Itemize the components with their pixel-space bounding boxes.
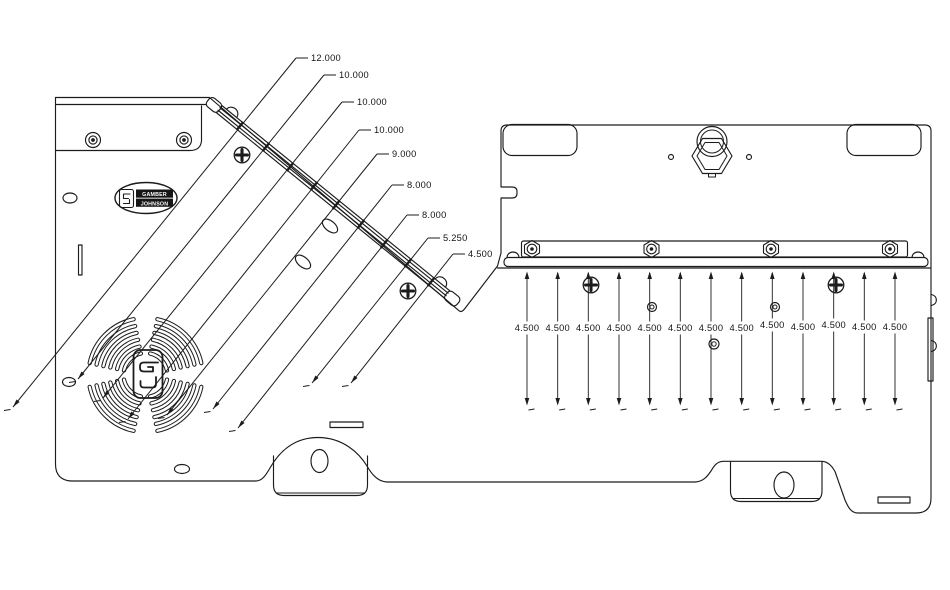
dim-label: 4.500: [668, 323, 693, 333]
end-tick: [713, 409, 719, 410]
right-view: [498, 125, 937, 504]
hex-bolt-icon: [764, 241, 779, 258]
ring-hole: [648, 303, 657, 312]
end-tick: [590, 409, 596, 410]
screw-icon: [86, 133, 101, 148]
dim-label: 4.500: [515, 323, 540, 333]
mounting-strip: [504, 252, 928, 266]
arrowhead-icon: [801, 398, 806, 406]
dim-label: 4.500: [852, 322, 877, 332]
arrowhead-icon: [831, 272, 836, 280]
callout-dimensions: 12.00010.00010.00010.0009.0008.0008.0005…: [4, 53, 493, 432]
callout-leader: [103, 102, 342, 398]
hex-bolt-icon: [644, 241, 659, 258]
foot-tab-right: [731, 462, 823, 502]
callout-label: 10.000: [374, 125, 404, 135]
callout-leader: [213, 185, 392, 409]
callout-leader: [167, 154, 377, 415]
callout-label: 10.000: [339, 70, 369, 80]
arrowhead-icon: [739, 272, 744, 280]
callout-label: 5.250: [443, 233, 468, 243]
edge-bump: [932, 295, 937, 306]
dim-label: 4.500: [699, 323, 724, 333]
dim-label: 4.500: [729, 323, 754, 333]
hex-bolt-icon: [883, 241, 898, 258]
slot: [878, 497, 910, 503]
arrowhead-icon: [709, 272, 714, 280]
engineering-drawing: 12.00010.00010.00010.0009.0008.0008.0005…: [0, 0, 950, 590]
arrowhead-icon: [862, 398, 867, 406]
arrowhead-icon: [678, 398, 683, 406]
slot: [320, 216, 340, 235]
arrowhead-icon: [678, 272, 683, 280]
arrowhead-icon: [831, 398, 836, 406]
arrowhead-icon: [647, 272, 652, 280]
hex-bolts: [525, 241, 898, 258]
arrowhead-icon: [617, 272, 622, 280]
top-cutout: [503, 125, 577, 156]
pilot-hole: [747, 155, 752, 160]
arrowhead-icon: [893, 272, 898, 280]
ring-hole: [709, 339, 719, 349]
dim-label: 4.500: [607, 323, 632, 333]
end-tick: [897, 409, 903, 410]
top-cutout: [847, 125, 921, 156]
end-tick: [651, 409, 657, 410]
callout-label: 9.000: [392, 149, 417, 159]
foot-tab-left: [274, 450, 368, 496]
arrowhead-icon: [525, 398, 530, 406]
arrowhead-icon: [647, 398, 652, 406]
knob: [692, 127, 732, 178]
callout-label: 8.000: [407, 180, 432, 190]
mount-rail: [205, 92, 465, 307]
hex-bolt-icon: [525, 241, 540, 258]
end-tick: [774, 409, 780, 410]
arrowhead-icon: [801, 272, 806, 280]
dim-label: 4.500: [576, 323, 601, 333]
arrowhead-icon: [739, 398, 744, 406]
logo-brand-line1: GAMBER: [142, 192, 167, 198]
dim-label: 4.500: [760, 320, 785, 330]
arrowhead-icon: [586, 398, 591, 406]
slot: [330, 422, 363, 428]
edge-bump: [932, 341, 937, 352]
pilot-hole: [669, 155, 674, 160]
crosshead-screw-icon: [583, 277, 599, 293]
end-tick: [229, 431, 236, 432]
arrowhead-icon: [617, 398, 622, 406]
slot: [63, 193, 77, 203]
end-tick: [303, 386, 310, 387]
arrowhead-icon: [555, 398, 560, 406]
speaker-grille: [90, 319, 202, 431]
end-tick: [682, 409, 688, 410]
vertical-dimensions: 4.5004.5004.5004.5004.5004.5004.5004.500…: [514, 272, 908, 411]
arrowhead-icon: [525, 272, 530, 280]
logo-brand-line2: JOHNSON: [141, 201, 169, 207]
arrowhead-icon: [862, 272, 867, 280]
hinge-bar: [522, 241, 908, 258]
dim-label: 4.500: [791, 322, 816, 332]
dim-label: 4.500: [883, 322, 908, 332]
end-tick: [559, 409, 565, 410]
end-tick: [4, 410, 11, 411]
dim-label: 4.500: [545, 323, 570, 333]
callout-label: 12.000: [311, 53, 341, 63]
end-tick: [69, 382, 76, 383]
crosshead-screw-icon: [234, 147, 250, 163]
end-tick: [835, 409, 841, 410]
arrowhead-icon: [893, 398, 898, 406]
part-outline: [56, 98, 932, 514]
dim-label: 4.500: [821, 320, 846, 330]
slot: [79, 245, 83, 275]
arrowhead-icon: [709, 398, 714, 406]
end-tick: [204, 412, 211, 413]
arrowhead-icon: [555, 272, 560, 280]
end-tick: [805, 409, 811, 410]
crosshead-screw-icon: [828, 277, 844, 293]
end-tick: [529, 409, 535, 410]
arrowhead-icon: [770, 272, 775, 280]
end-tick: [621, 409, 627, 410]
callout-label: 10.000: [357, 97, 387, 107]
dim-label: 4.500: [637, 323, 662, 333]
callout-leader: [351, 254, 453, 383]
slot: [175, 465, 190, 474]
drawing-canvas: 12.00010.00010.00010.0009.0008.0008.0005…: [0, 0, 950, 590]
crosshead-screw-icon: [400, 283, 416, 299]
end-tick: [342, 386, 349, 387]
callout-label: 4.500: [468, 249, 493, 259]
screw-icon: [177, 133, 192, 148]
arrowhead-icon: [586, 272, 591, 280]
arrowhead-icon: [770, 398, 775, 406]
top-bracket: [56, 105, 207, 151]
end-tick: [743, 409, 749, 410]
callout-label: 8.000: [422, 210, 447, 220]
end-tick: [866, 409, 872, 410]
